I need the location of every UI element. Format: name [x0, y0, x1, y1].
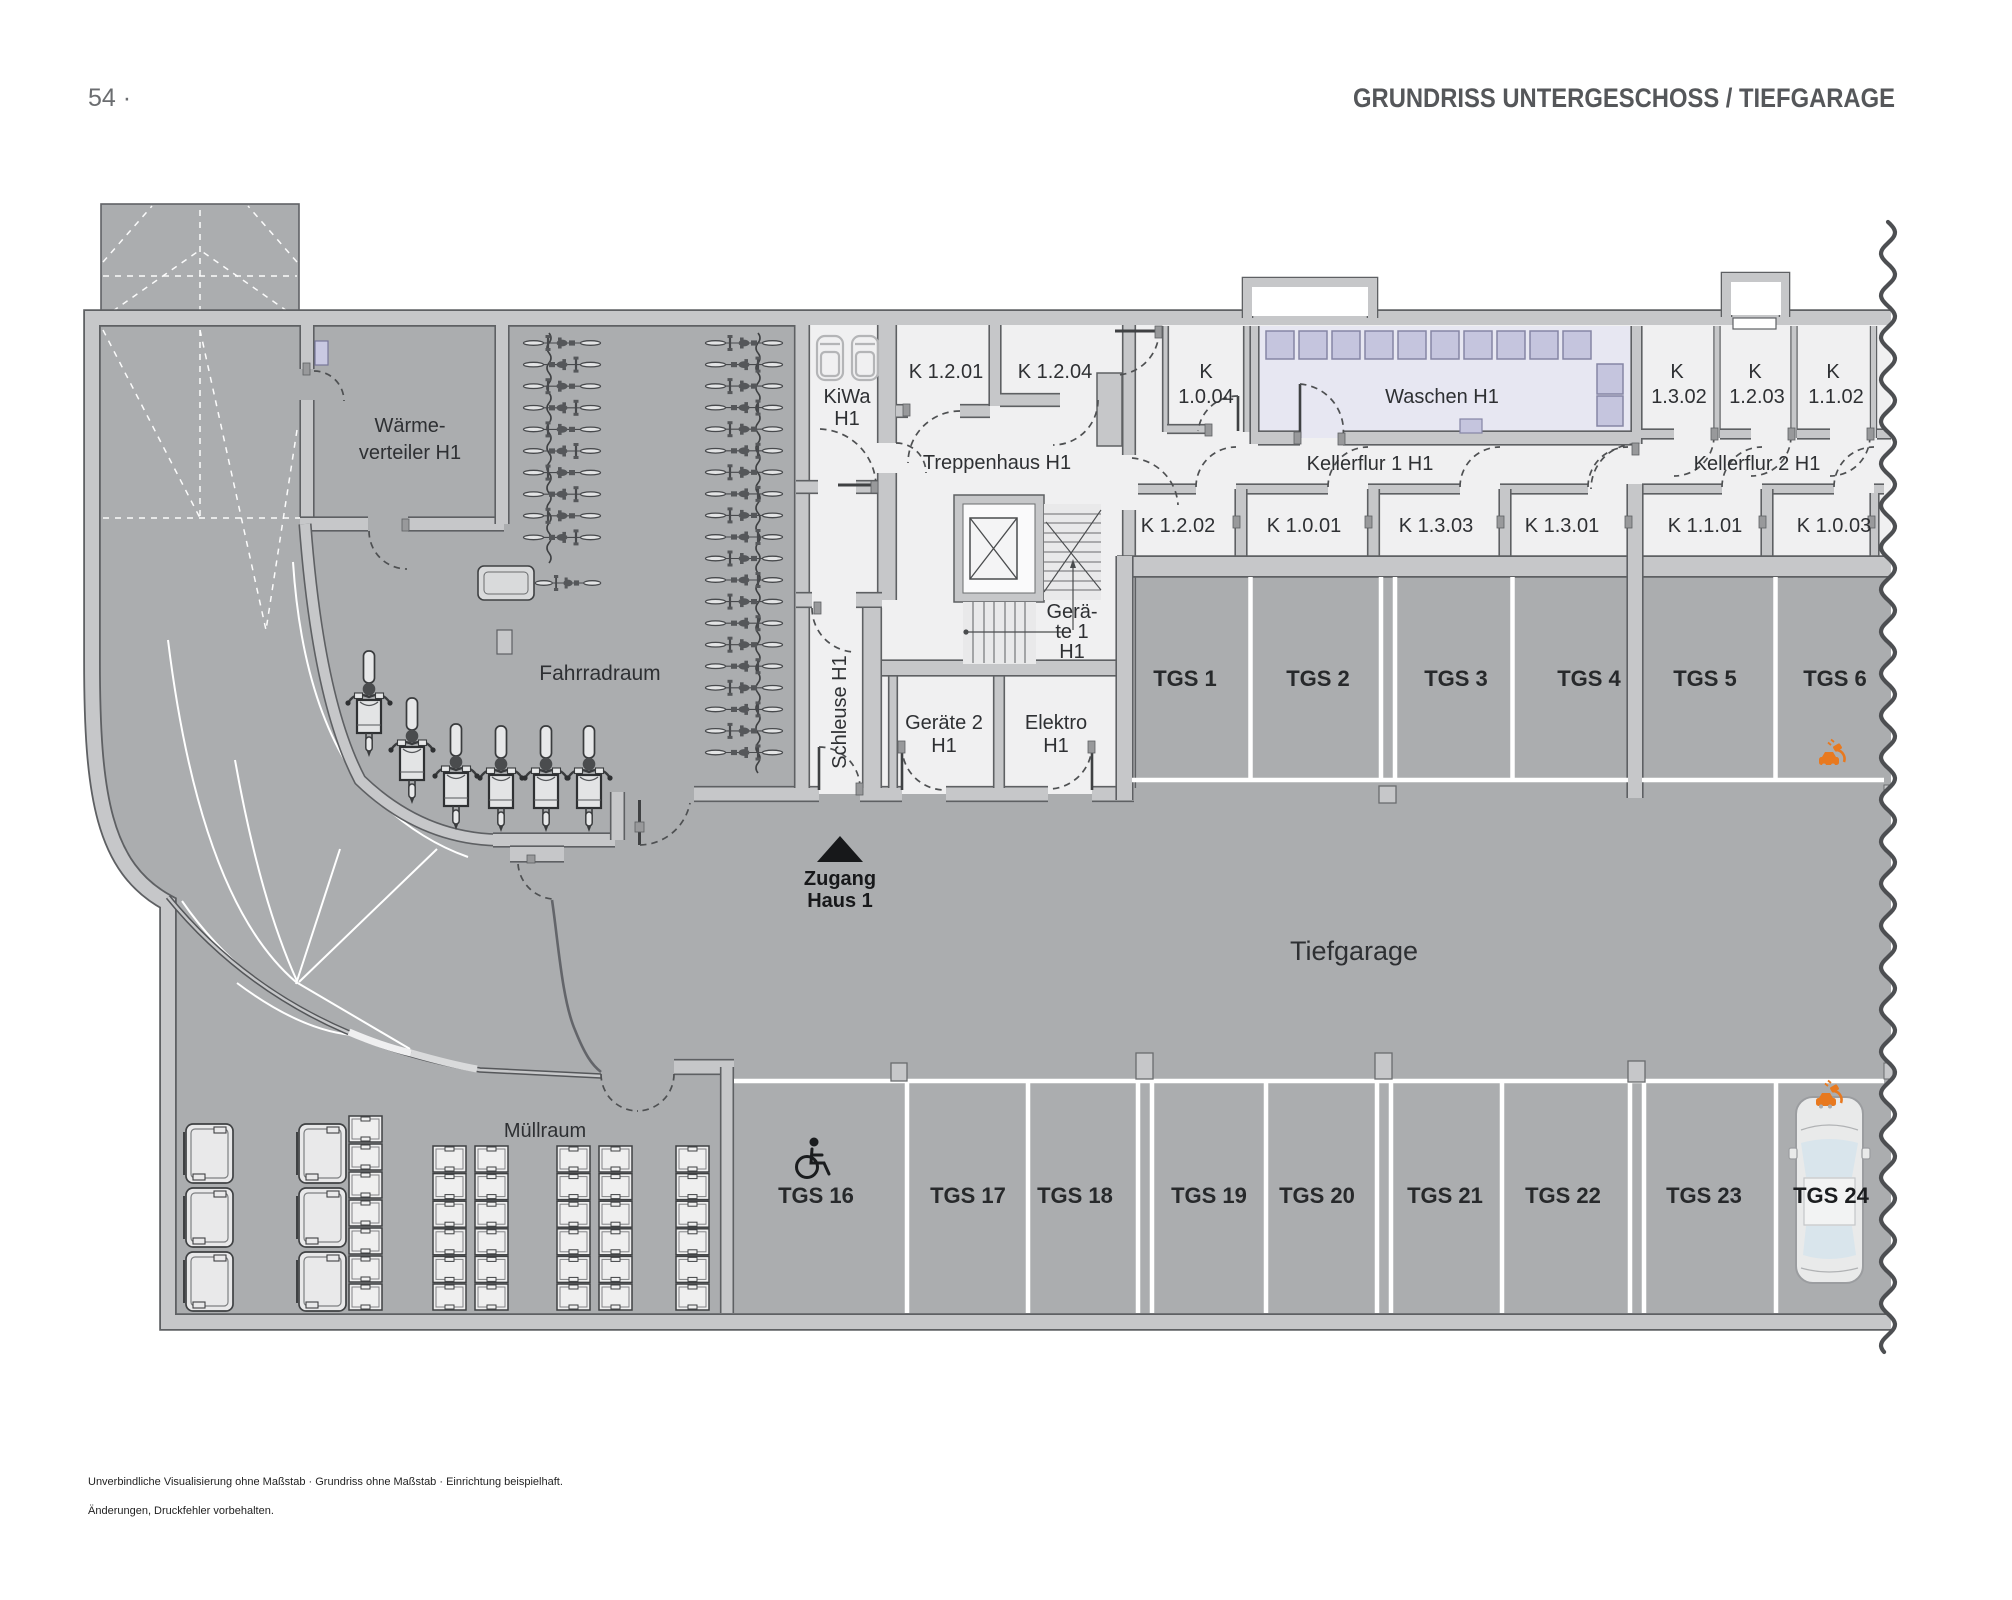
svg-text:Haus 1: Haus 1: [807, 890, 873, 912]
svg-text:Treppenhaus H1: Treppenhaus H1: [923, 452, 1071, 474]
svg-text:K 1.2.01: K 1.2.01: [909, 361, 984, 383]
svg-text:TGS 16: TGS 16: [778, 1183, 854, 1208]
svg-text:1.0.04: 1.0.04: [1178, 386, 1234, 408]
svg-text:TGS 6: TGS 6: [1803, 666, 1867, 691]
svg-text:54 ·: 54 ·: [88, 84, 131, 112]
svg-text:K 1.2.04: K 1.2.04: [1018, 361, 1093, 383]
svg-text:Tiefgarage: Tiefgarage: [1290, 936, 1418, 966]
svg-text:Fahrradraum: Fahrradraum: [539, 662, 660, 685]
svg-text:H1: H1: [1043, 735, 1069, 757]
svg-text:TGS 4: TGS 4: [1557, 666, 1621, 691]
svg-text:Geräte 2: Geräte 2: [905, 712, 983, 734]
svg-text:TGS 21: TGS 21: [1407, 1183, 1483, 1208]
svg-text:Unverbindliche Visualisierung: Unverbindliche Visualisierung ohne Maßst…: [88, 1476, 563, 1488]
svg-text:TGS 1: TGS 1: [1153, 666, 1217, 691]
svg-text:GRUNDRISS UNTERGESCHOSS / TIEF: GRUNDRISS UNTERGESCHOSS / TIEFGARAGE: [1353, 83, 1895, 113]
svg-text:K 1.3.03: K 1.3.03: [1399, 515, 1474, 537]
svg-text:Müllraum: Müllraum: [504, 1120, 586, 1142]
svg-text:K: K: [1199, 361, 1213, 383]
svg-text:TGS 22: TGS 22: [1525, 1183, 1601, 1208]
svg-text:K: K: [1748, 361, 1762, 383]
svg-text:H1: H1: [1059, 641, 1085, 663]
svg-text:K 1.1.01: K 1.1.01: [1668, 515, 1743, 537]
svg-text:TGS 23: TGS 23: [1666, 1183, 1742, 1208]
svg-text:K: K: [1670, 361, 1684, 383]
svg-text:1.1.02: 1.1.02: [1808, 386, 1864, 408]
svg-text:TGS 19: TGS 19: [1171, 1183, 1247, 1208]
svg-text:Waschen H1: Waschen H1: [1385, 386, 1499, 408]
svg-text:verteiler H1: verteiler H1: [359, 442, 461, 464]
svg-text:1.3.02: 1.3.02: [1651, 386, 1707, 408]
svg-text:H1: H1: [834, 408, 860, 430]
svg-text:Schleuse H1: Schleuse H1: [829, 655, 851, 768]
svg-text:Zugang: Zugang: [804, 868, 876, 890]
svg-text:TGS 20: TGS 20: [1279, 1183, 1355, 1208]
svg-text:TGS 5: TGS 5: [1673, 666, 1737, 691]
svg-text:TGS 17: TGS 17: [930, 1183, 1006, 1208]
svg-text:K 1.2.02: K 1.2.02: [1141, 515, 1216, 537]
svg-text:TGS 24: TGS 24: [1793, 1183, 1870, 1208]
svg-text:KiWa: KiWa: [823, 386, 871, 408]
svg-text:K 1.0.03: K 1.0.03: [1797, 515, 1872, 537]
svg-text:Änderungen, Druckfehler vorbeh: Änderungen, Druckfehler vorbehalten.: [88, 1505, 274, 1517]
svg-text:te 1: te 1: [1055, 621, 1088, 643]
svg-text:Kellerflur 1 H1: Kellerflur 1 H1: [1307, 453, 1434, 475]
svg-text:Wärme-: Wärme-: [374, 415, 445, 437]
svg-text:Elektro: Elektro: [1025, 712, 1087, 734]
svg-text:K: K: [1826, 361, 1840, 383]
svg-text:Kellerflur 2 H1: Kellerflur 2 H1: [1694, 453, 1821, 475]
svg-text:TGS 2: TGS 2: [1286, 666, 1350, 691]
svg-text:1.2.03: 1.2.03: [1729, 386, 1785, 408]
svg-text:Gerä-: Gerä-: [1046, 601, 1097, 623]
svg-text:TGS 3: TGS 3: [1424, 666, 1488, 691]
svg-text:TGS 18: TGS 18: [1037, 1183, 1113, 1208]
svg-text:H1: H1: [931, 735, 957, 757]
svg-text:K 1.0.01: K 1.0.01: [1267, 515, 1342, 537]
svg-text:K 1.3.01: K 1.3.01: [1525, 515, 1600, 537]
